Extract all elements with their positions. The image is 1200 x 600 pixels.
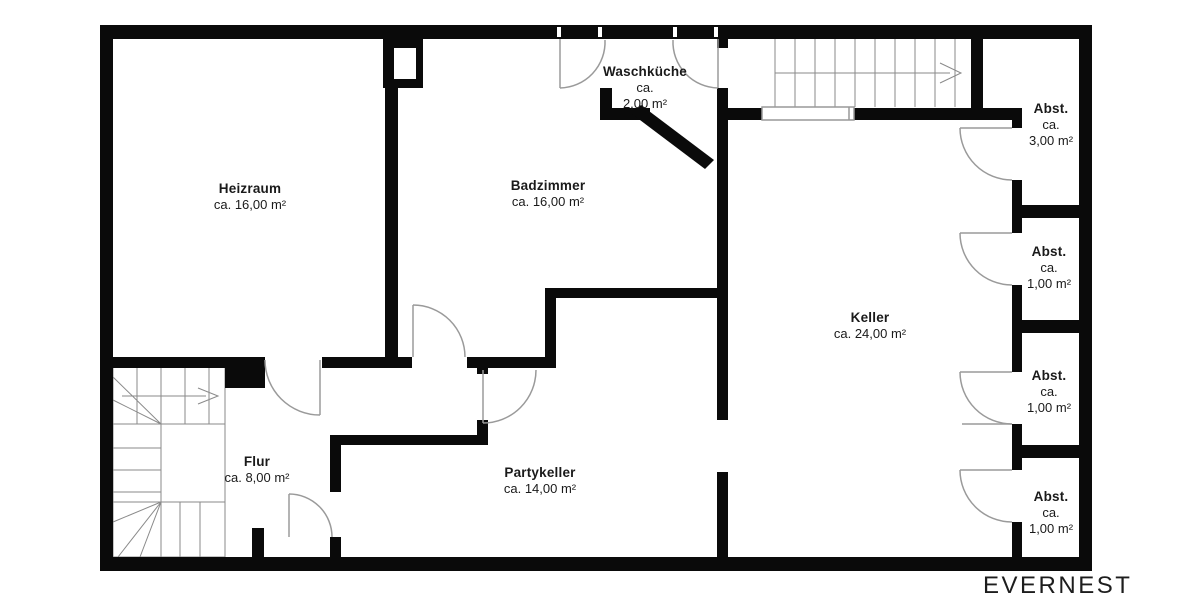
diagonal-wall	[632, 105, 714, 169]
room-area: 1,00 m²	[1029, 521, 1073, 537]
staircase-bottom-left	[113, 367, 225, 557]
door-swing-arc	[483, 370, 536, 423]
door-swing-arc	[960, 128, 1012, 180]
stair-landing-window	[762, 107, 854, 120]
room-area: 1,00 m²	[1027, 276, 1071, 292]
room-area: 2,00 m²	[603, 96, 687, 112]
room-label-waschkueche: Waschküche ca.2,00 m²	[603, 64, 687, 112]
room-name: Abst.	[1027, 368, 1071, 384]
room-name: Heizraum	[214, 181, 286, 197]
room-area: ca.	[1029, 117, 1073, 133]
door-swing-arc	[560, 40, 605, 88]
chimney-flue	[394, 48, 416, 79]
room-name: Abst.	[1029, 101, 1073, 117]
walls	[100, 25, 1092, 571]
door-swing-arc	[413, 305, 465, 357]
outer-wall-right	[1079, 25, 1092, 571]
room-area: ca.	[1027, 384, 1071, 400]
outer-wall-top	[100, 25, 1092, 39]
door-swing-arc	[289, 494, 332, 537]
room-label-abst-3: Abst. ca.1,00 m²	[1027, 368, 1071, 416]
room-label-heizraum: Heizraum ca. 16,00 m²	[214, 181, 286, 213]
room-name: Waschküche	[603, 64, 687, 80]
floor-plan: EVERNEST Heizraum ca. 16,00 m² Badzimmer…	[0, 0, 1200, 600]
room-label-badzimmer: Badzimmer ca. 16,00 m²	[511, 178, 586, 210]
room-area: ca. 16,00 m²	[214, 197, 286, 213]
door-swing-arc	[265, 360, 320, 415]
room-label-abst-2: Abst. ca.1,00 m²	[1027, 244, 1071, 292]
brand-logo: EVERNEST	[983, 574, 1132, 598]
room-label-keller: Keller ca. 24,00 m²	[834, 310, 906, 342]
room-name: Partykeller	[504, 465, 576, 481]
room-area: 1,00 m²	[1027, 400, 1071, 416]
outer-wall-bottom	[100, 557, 1092, 571]
room-label-abst-4: Abst. ca.1,00 m²	[1029, 489, 1073, 537]
room-area: ca. 24,00 m²	[834, 326, 906, 342]
room-area: 3,00 m²	[1029, 133, 1073, 149]
room-area: ca. 14,00 m²	[504, 481, 576, 497]
outer-wall-left	[100, 25, 113, 571]
room-label-partykeller: Partykeller ca. 14,00 m²	[504, 465, 576, 497]
room-area: ca.	[1029, 505, 1073, 521]
room-area: ca.	[1027, 260, 1071, 276]
room-name: Keller	[834, 310, 906, 326]
room-area: ca. 16,00 m²	[511, 194, 586, 210]
floor-plan-drawing	[0, 0, 1200, 600]
room-area: ca. 8,00 m²	[224, 470, 289, 486]
wall-pier	[225, 357, 265, 388]
room-name: Abst.	[1029, 489, 1073, 505]
door-swing-arc	[960, 470, 1012, 522]
door-swing-arc	[960, 233, 1012, 285]
room-name: Flur	[224, 454, 289, 470]
room-label-flur: Flur ca. 8,00 m²	[224, 454, 289, 486]
room-name: Abst.	[1027, 244, 1071, 260]
room-label-abst-1: Abst. ca.3,00 m²	[1029, 101, 1073, 149]
door-swing-arc	[960, 372, 1012, 424]
staircase-top-right	[775, 39, 961, 107]
room-area: ca.	[603, 80, 687, 96]
room-name: Badzimmer	[511, 178, 586, 194]
